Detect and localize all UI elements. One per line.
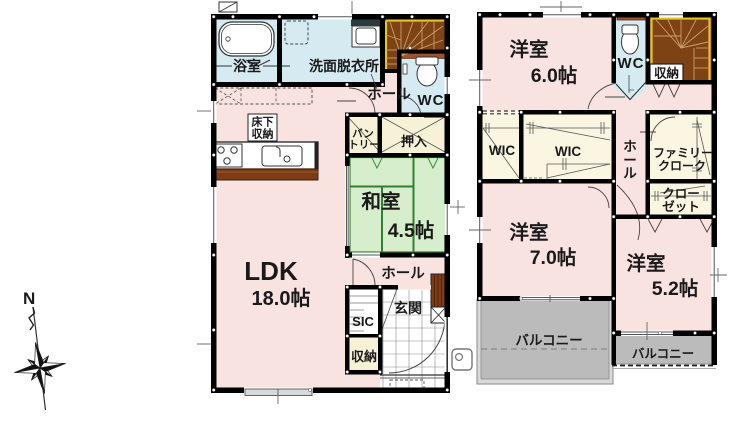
- svg-text:浴室: 浴室: [233, 58, 261, 74]
- svg-text:ホ: ホ: [623, 139, 637, 154]
- svg-text:18.0帖: 18.0帖: [252, 287, 311, 310]
- svg-text:洋室: 洋室: [509, 221, 548, 244]
- svg-text:床下: 床下: [252, 115, 274, 129]
- svg-text:洗面脱衣所: 洗面脱衣所: [309, 58, 379, 74]
- svg-text:洋室: 洋室: [626, 252, 665, 275]
- svg-text:トリー: トリー: [348, 139, 380, 151]
- svg-text:ホール: ホール: [367, 86, 411, 103]
- svg-text:クロー: クロー: [662, 187, 700, 201]
- svg-text:ホール: ホール: [381, 265, 425, 282]
- svg-text:ル: ル: [623, 166, 637, 181]
- svg-text:玄関: 玄関: [394, 300, 422, 316]
- svg-text:ゼット: ゼット: [662, 199, 700, 214]
- svg-text:洋室: 洋室: [509, 38, 548, 61]
- svg-text:収納: 収納: [654, 66, 679, 81]
- svg-text:WC: WC: [618, 55, 645, 72]
- svg-text:N: N: [23, 289, 35, 308]
- svg-text:5.2帖: 5.2帖: [652, 277, 699, 300]
- svg-text:収納: 収納: [351, 349, 377, 364]
- svg-text:ファミリー: ファミリー: [653, 146, 713, 160]
- svg-text:収納: 収納: [252, 127, 274, 141]
- svg-text:SIC: SIC: [352, 314, 374, 329]
- svg-text:WIC: WIC: [489, 143, 515, 158]
- svg-text:クローク: クローク: [658, 159, 706, 173]
- svg-text:バルコニー: バルコニー: [515, 333, 582, 348]
- svg-text:和室: 和室: [361, 190, 400, 213]
- svg-text:LDK: LDK: [244, 256, 298, 286]
- svg-text:WC: WC: [418, 92, 445, 109]
- svg-text:7.0帖: 7.0帖: [530, 246, 577, 269]
- svg-text:押入: 押入: [401, 134, 427, 149]
- svg-text:6.0帖: 6.0帖: [531, 64, 578, 87]
- svg-text:バルコニー: バルコニー: [632, 347, 694, 361]
- svg-text:WIC: WIC: [555, 144, 581, 159]
- svg-text:4.5帖: 4.5帖: [388, 219, 435, 242]
